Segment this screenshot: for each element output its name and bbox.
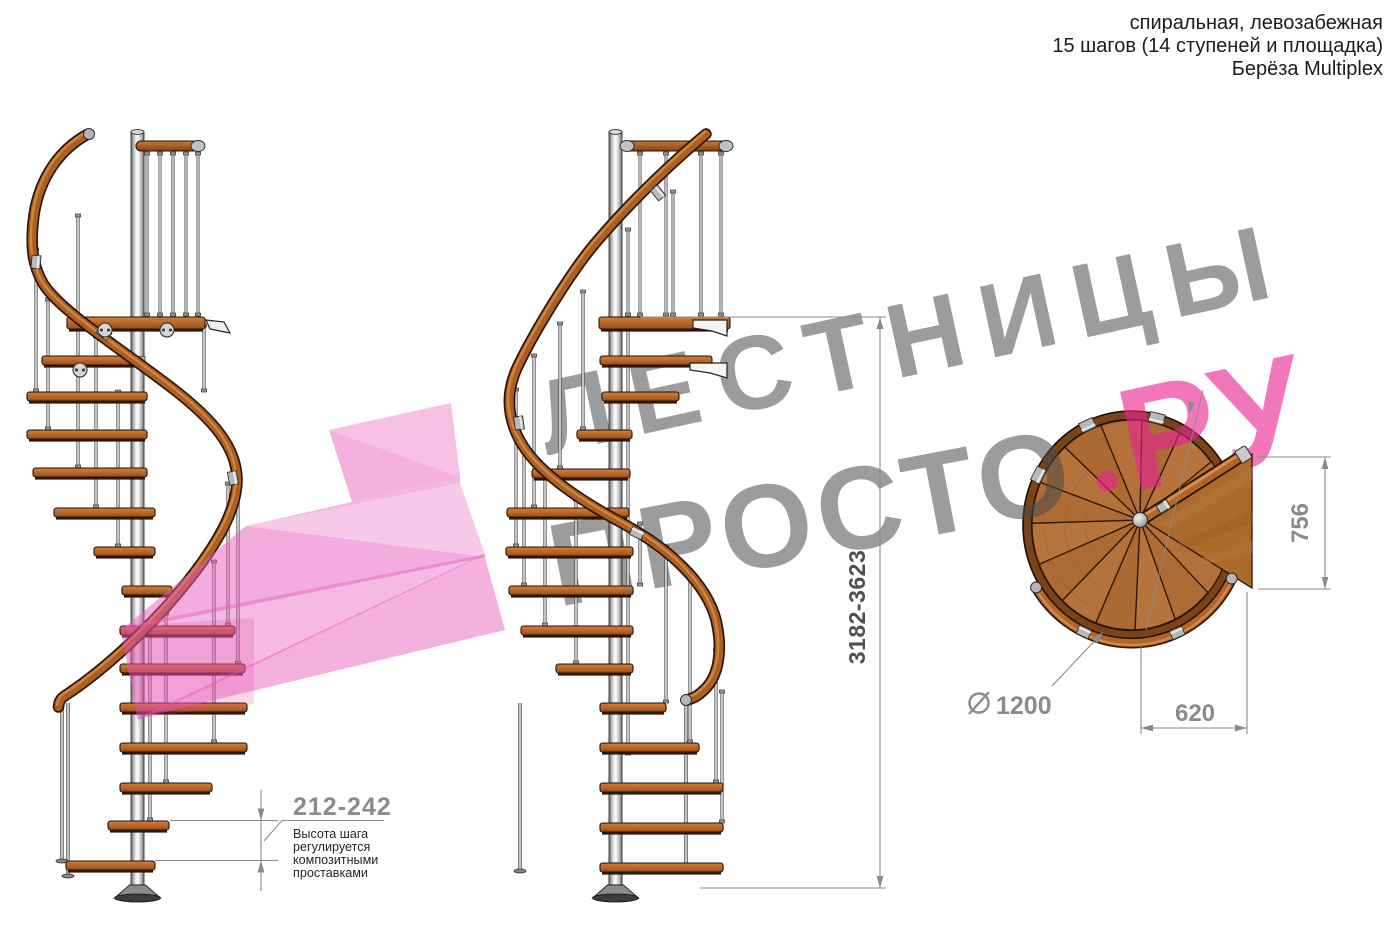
svg-text:Высота шага: Высота шага xyxy=(293,827,368,841)
svg-text:Берёза Multiplex: Берёза Multiplex xyxy=(1232,58,1383,80)
svg-text:проставками: проставками xyxy=(293,866,368,880)
svg-text:1200: 1200 xyxy=(996,692,1052,720)
svg-text:620: 620 xyxy=(1175,700,1215,727)
svg-text:спиральная, левозабежная: спиральная, левозабежная xyxy=(1130,12,1383,34)
svg-text:212-242: 212-242 xyxy=(293,793,392,821)
svg-text:756: 756 xyxy=(1287,503,1314,543)
svg-text:3182-3623: 3182-3623 xyxy=(844,550,870,665)
svg-text:15 шагов (14 ступеней и площад: 15 шагов (14 ступеней и площадка) xyxy=(1052,35,1383,57)
svg-text:композитными: композитными xyxy=(293,853,378,867)
svg-text:регулируется: регулируется xyxy=(293,840,370,854)
